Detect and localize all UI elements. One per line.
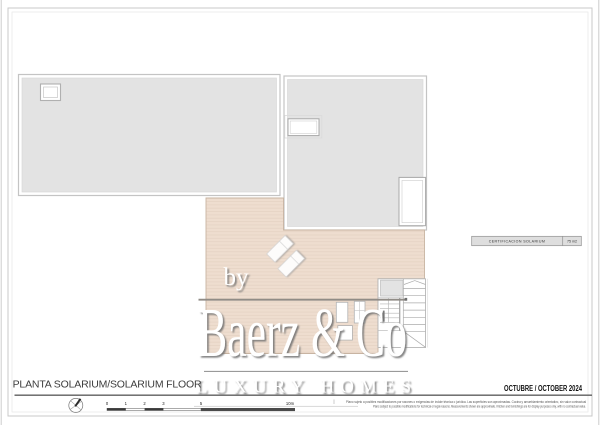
svg-text:Plans subject to possible modi: Plans subject to possible modifications …: [373, 405, 586, 409]
svg-text:CERTIFICACION SOLARIUM: CERTIFICACION SOLARIUM: [489, 240, 545, 244]
svg-text:PLANTA SOLARIUM/SOLARIUM FLOOR: PLANTA SOLARIUM/SOLARIUM FLOOR: [13, 379, 202, 391]
svg-text:OCTUBRE / OCTOBER 2024: OCTUBRE / OCTOBER 2024: [504, 383, 582, 393]
svg-text:Plano sujeto a posibles modifi: Plano sujeto a posibles modificaciones p…: [346, 400, 586, 404]
svg-text:by: by: [224, 264, 250, 291]
svg-text:Baerz & Co: Baerz & Co: [198, 295, 407, 372]
svg-text:75 m2: 75 m2: [567, 240, 577, 244]
svg-text:10m: 10m: [286, 401, 295, 406]
